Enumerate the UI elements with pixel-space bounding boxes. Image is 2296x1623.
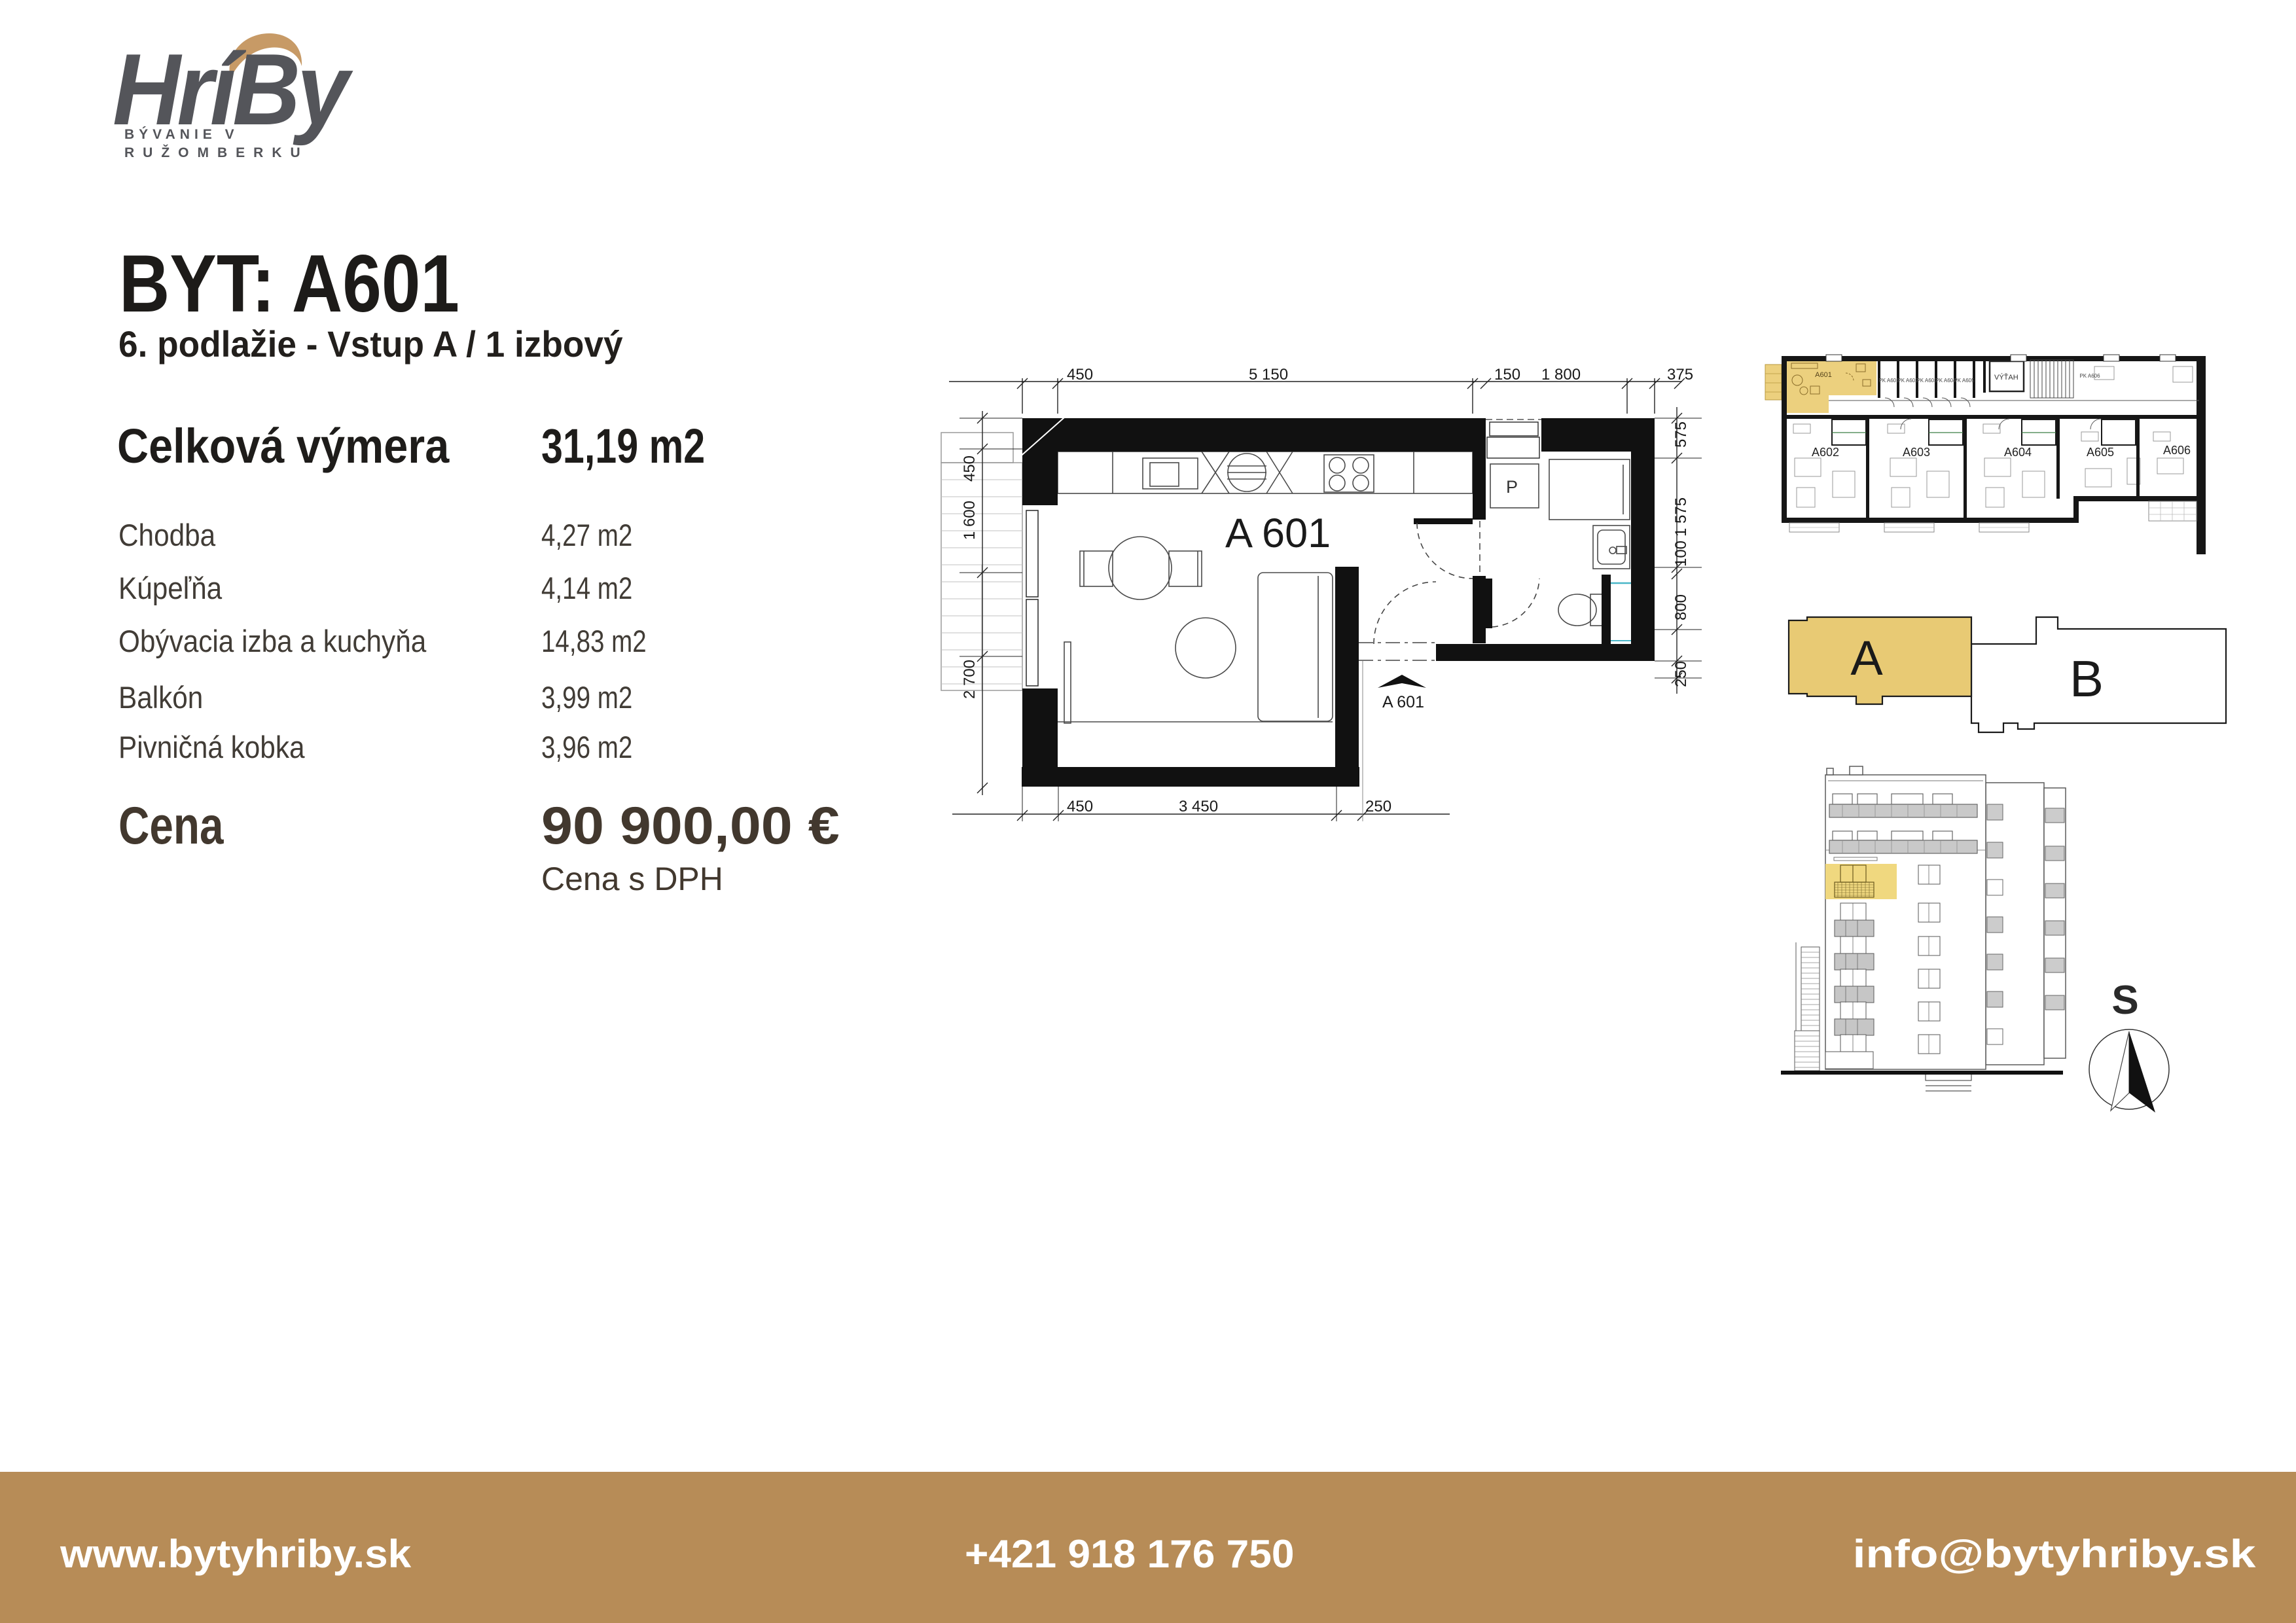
svg-text:1 800: 1 800 [1541,366,1581,383]
svg-text:575: 575 [1672,421,1690,448]
svg-text:A 601: A 601 [1225,510,1331,556]
svg-text:BÝVANIE V: BÝVANIE V [124,126,239,142]
svg-text:1 600: 1 600 [961,501,978,540]
svg-text:150: 150 [1494,366,1520,383]
svg-text:PK A605: PK A605 [1954,378,1975,383]
svg-text:375: 375 [1667,366,1693,383]
svg-text:800: 800 [1672,594,1690,620]
svg-text:A 601: A 601 [1382,693,1424,711]
svg-text:100: 100 [1672,541,1690,567]
svg-text:P: P [1506,477,1518,497]
svg-text:A: A [1850,631,1883,685]
svg-text:A606: A606 [2163,444,2191,457]
svg-text:A603: A603 [1903,446,1930,459]
svg-text:A605: A605 [2087,446,2114,459]
svg-text:S: S [2111,978,2138,1023]
svg-text:B: B [2070,650,2104,707]
svg-text:250: 250 [1365,798,1391,815]
svg-text:450: 450 [961,455,978,482]
svg-text:250: 250 [1672,661,1690,687]
svg-text:5 150: 5 150 [1249,366,1288,383]
svg-text:PK A603: PK A603 [1916,378,1937,383]
svg-text:3 450: 3 450 [1179,798,1218,815]
svg-text:PK A604: PK A604 [1935,378,1956,383]
svg-text:450: 450 [1067,366,1093,383]
svg-text:VÝŤAH: VÝŤAH [1994,373,2018,382]
svg-text:A604: A604 [2004,446,2032,459]
svg-text:450: 450 [1067,798,1093,815]
svg-text:PK A602: PK A602 [1897,378,1918,383]
svg-text:A601: A601 [1815,371,1832,379]
svg-text:1 575: 1 575 [1672,497,1690,537]
svg-text:A602: A602 [1812,446,1839,459]
svg-text:PK A606: PK A606 [2079,373,2100,379]
svg-text:RUŽOMBERKU: RUŽOMBERKU [124,145,309,160]
svg-text:2 700: 2 700 [961,660,978,699]
svg-text:PK A601: PK A601 [1878,378,1899,383]
